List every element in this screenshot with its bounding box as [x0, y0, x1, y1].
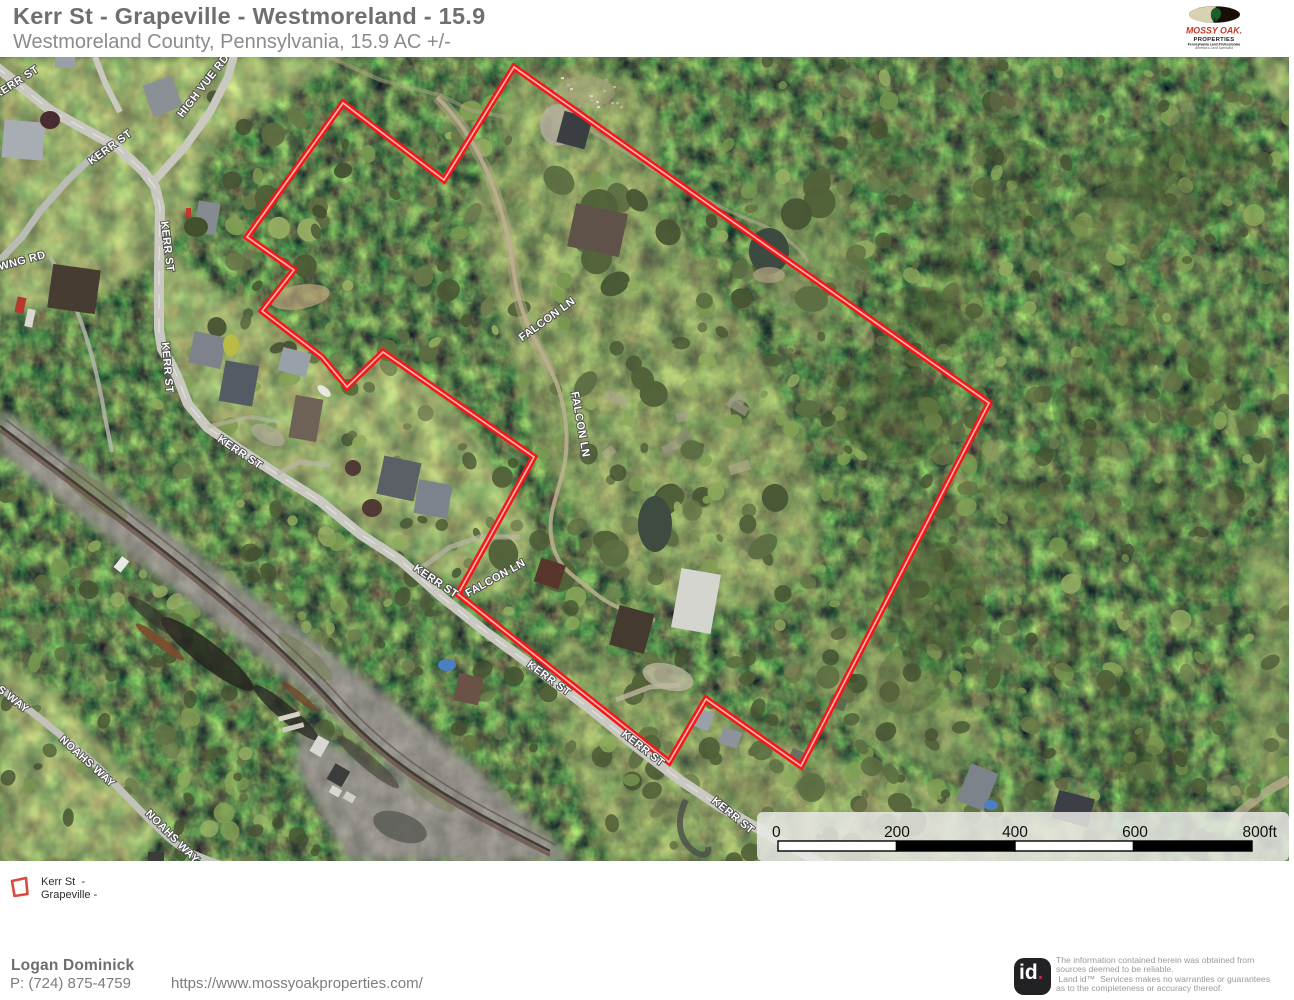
svg-text:America's Land Specialist: America's Land Specialist [1194, 46, 1234, 50]
svg-text:400: 400 [1002, 824, 1028, 841]
svg-text:600: 600 [1122, 824, 1148, 841]
svg-text:200: 200 [884, 824, 910, 841]
svg-text:MOSSY OAK.: MOSSY OAK. [1186, 26, 1242, 36]
svg-text:800ft: 800ft [1243, 824, 1278, 841]
svg-text:0: 0 [772, 824, 781, 841]
